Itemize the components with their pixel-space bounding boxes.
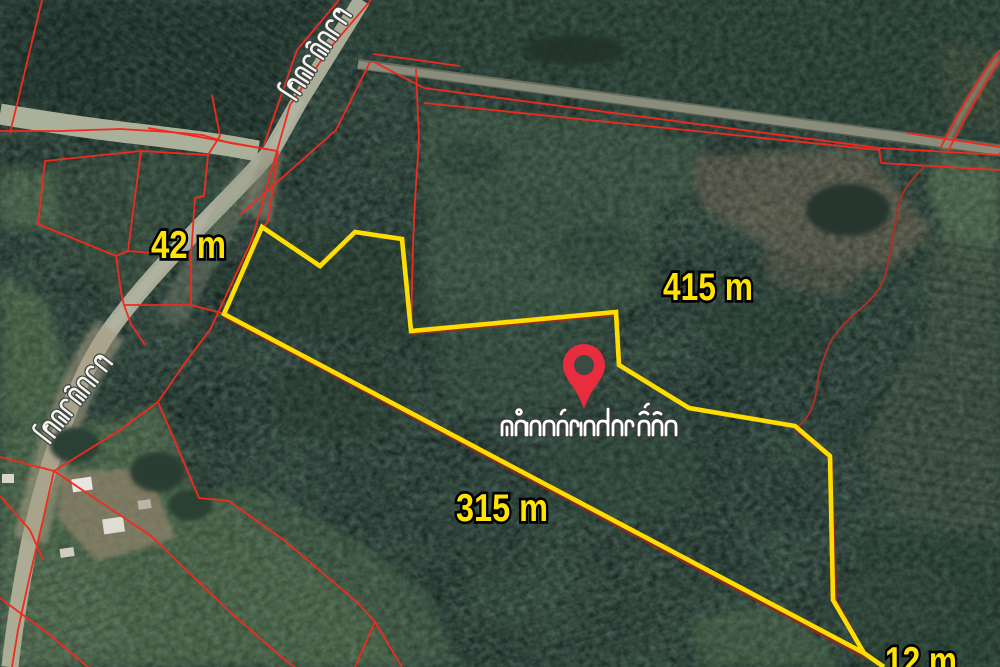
svg-text:42 m: 42 m xyxy=(151,224,226,267)
svg-text:415 m: 415 m xyxy=(663,266,753,309)
svg-text:315 m: 315 m xyxy=(456,487,548,530)
svg-text:12 m: 12 m xyxy=(885,640,957,667)
